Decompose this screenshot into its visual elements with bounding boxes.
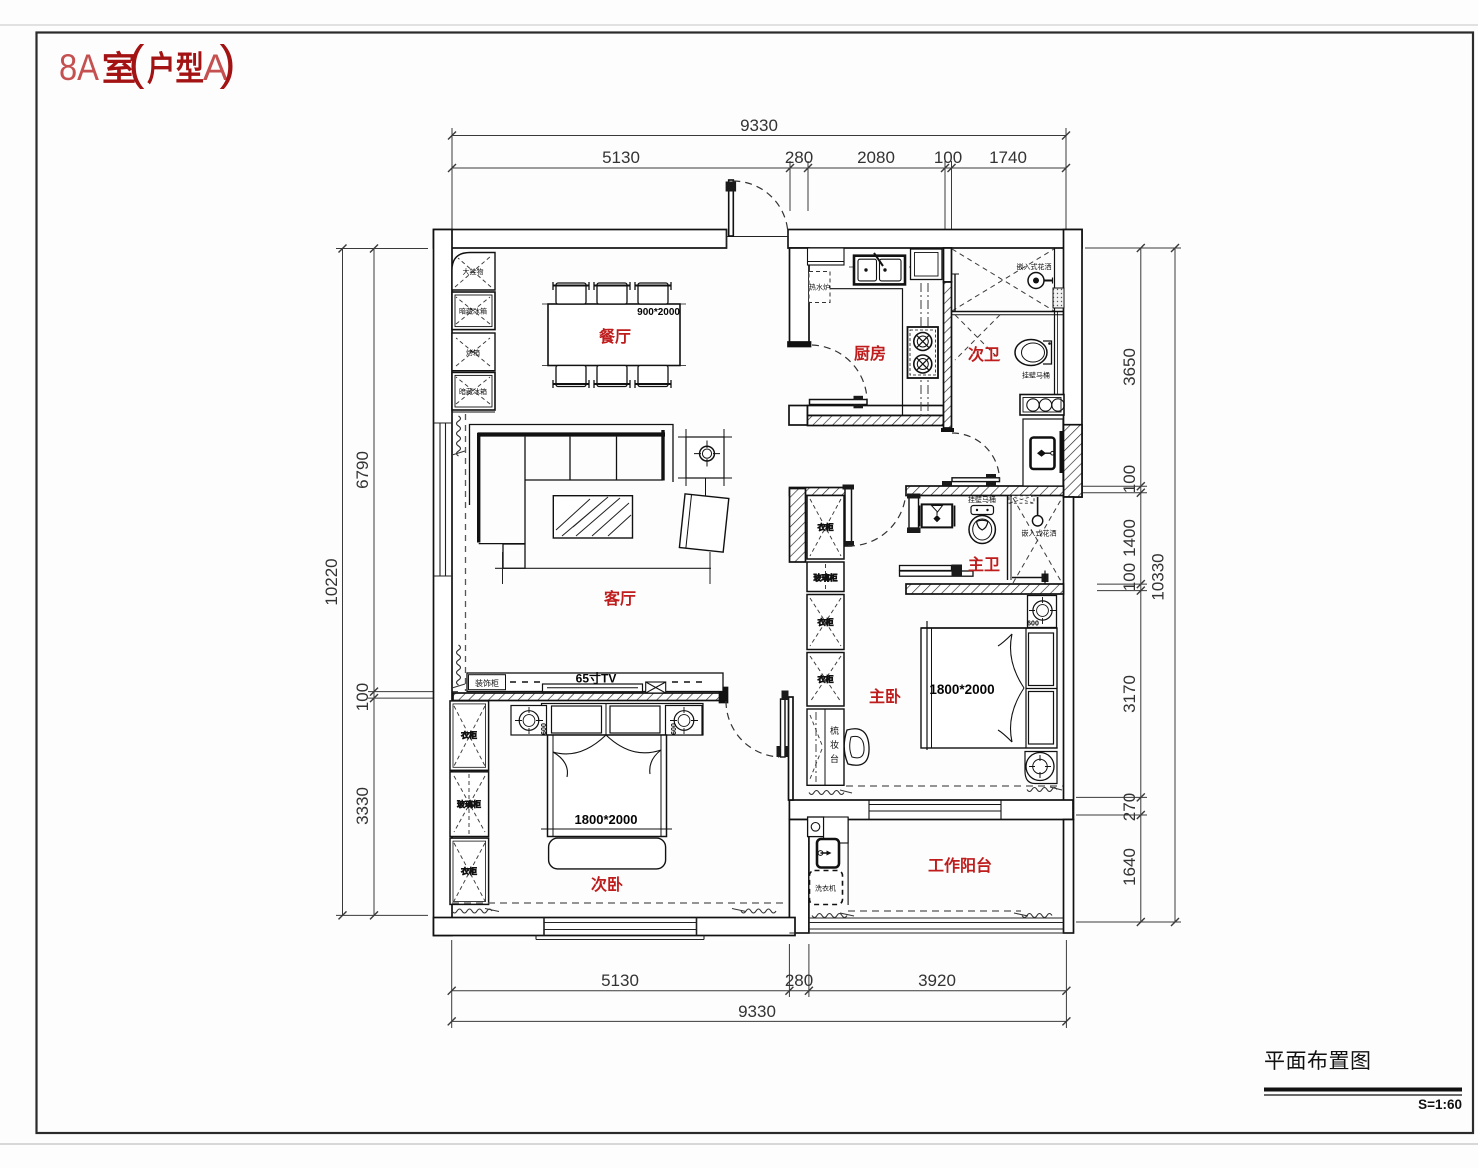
svg-text:1800*2000: 1800*2000 <box>929 682 994 697</box>
svg-text:600: 600 <box>541 723 548 735</box>
svg-text:10330: 10330 <box>1149 553 1168 600</box>
svg-text:3920: 3920 <box>918 971 956 990</box>
svg-text:梳: 梳 <box>830 725 839 736</box>
svg-text:5130: 5130 <box>601 971 639 990</box>
svg-text:衣柜: 衣柜 <box>818 674 834 684</box>
svg-text:280: 280 <box>785 971 813 990</box>
svg-text:嵌入式花洒: 嵌入式花洒 <box>1017 262 1052 271</box>
svg-text:600: 600 <box>1027 621 1039 628</box>
svg-text:热水炉: 热水炉 <box>809 283 830 292</box>
svg-text:3330: 3330 <box>353 787 372 825</box>
svg-text:衣柜: 衣柜 <box>461 730 477 740</box>
svg-text:玻璃柜: 玻璃柜 <box>814 573 838 583</box>
svg-text:暗藏冰箱: 暗藏冰箱 <box>459 387 487 396</box>
svg-text:3170: 3170 <box>1120 675 1139 713</box>
svg-text:主卧: 主卧 <box>869 687 901 706</box>
svg-text:厨房: 厨房 <box>854 344 886 363</box>
svg-text:玻璃柜: 玻璃柜 <box>457 799 481 809</box>
svg-text:平面布置图: 平面布置图 <box>1264 1050 1372 1073</box>
svg-text:次卫: 次卫 <box>968 345 1000 364</box>
svg-text:客厅: 客厅 <box>604 589 636 608</box>
svg-text:2080: 2080 <box>857 148 895 167</box>
svg-text:3650: 3650 <box>1120 348 1139 386</box>
svg-text:挂壁马桶: 挂壁马桶 <box>1022 371 1050 380</box>
svg-text:9330: 9330 <box>738 1002 776 1021</box>
svg-text:工作阳台: 工作阳台 <box>928 856 992 875</box>
svg-text:65寸TV: 65寸TV <box>576 671 617 686</box>
svg-text:1640: 1640 <box>1120 848 1139 886</box>
svg-text:S=1:60: S=1:60 <box>1418 1097 1462 1112</box>
svg-text:大挂物: 大挂物 <box>463 267 484 276</box>
svg-text:装饰柜: 装饰柜 <box>475 678 499 688</box>
svg-text:暗藏冰箱: 暗藏冰箱 <box>459 307 487 316</box>
svg-text:次卧: 次卧 <box>591 875 623 894</box>
svg-text:台: 台 <box>830 753 839 764</box>
svg-text:): ) <box>220 37 236 90</box>
svg-text:100: 100 <box>1120 563 1139 591</box>
svg-text:5130: 5130 <box>602 148 640 167</box>
svg-text:10220: 10220 <box>322 558 341 605</box>
svg-text:1740: 1740 <box>989 148 1027 167</box>
svg-text:主卫: 主卫 <box>968 555 1000 574</box>
svg-text:100: 100 <box>934 148 962 167</box>
svg-text:衣柜: 衣柜 <box>818 522 834 532</box>
svg-text:270: 270 <box>1120 793 1139 821</box>
svg-text:9330: 9330 <box>740 116 778 135</box>
svg-text:烤箱: 烤箱 <box>466 348 480 357</box>
svg-text:挂壁马桶: 挂壁马桶 <box>968 495 996 504</box>
svg-text:衣柜: 衣柜 <box>818 617 834 627</box>
svg-text:妆: 妆 <box>830 739 839 750</box>
svg-text:100: 100 <box>353 683 372 711</box>
svg-text:280: 280 <box>785 148 813 167</box>
svg-text:900*2000: 900*2000 <box>637 307 680 318</box>
svg-text:1400: 1400 <box>1120 519 1139 557</box>
svg-text:嵌入式花洒: 嵌入式花洒 <box>1022 529 1057 538</box>
svg-text:8A: 8A <box>59 47 99 88</box>
svg-text:餐厅: 餐厅 <box>598 327 631 346</box>
svg-text:100: 100 <box>1120 465 1139 493</box>
svg-text:1800*2000: 1800*2000 <box>575 812 638 827</box>
svg-text:(: ( <box>129 37 145 90</box>
svg-text:户型: 户型 <box>147 51 204 89</box>
svg-text:洗衣机: 洗衣机 <box>815 884 836 893</box>
svg-text:600: 600 <box>671 723 678 735</box>
svg-text:衣柜: 衣柜 <box>461 866 477 876</box>
svg-text:6790: 6790 <box>353 451 372 489</box>
